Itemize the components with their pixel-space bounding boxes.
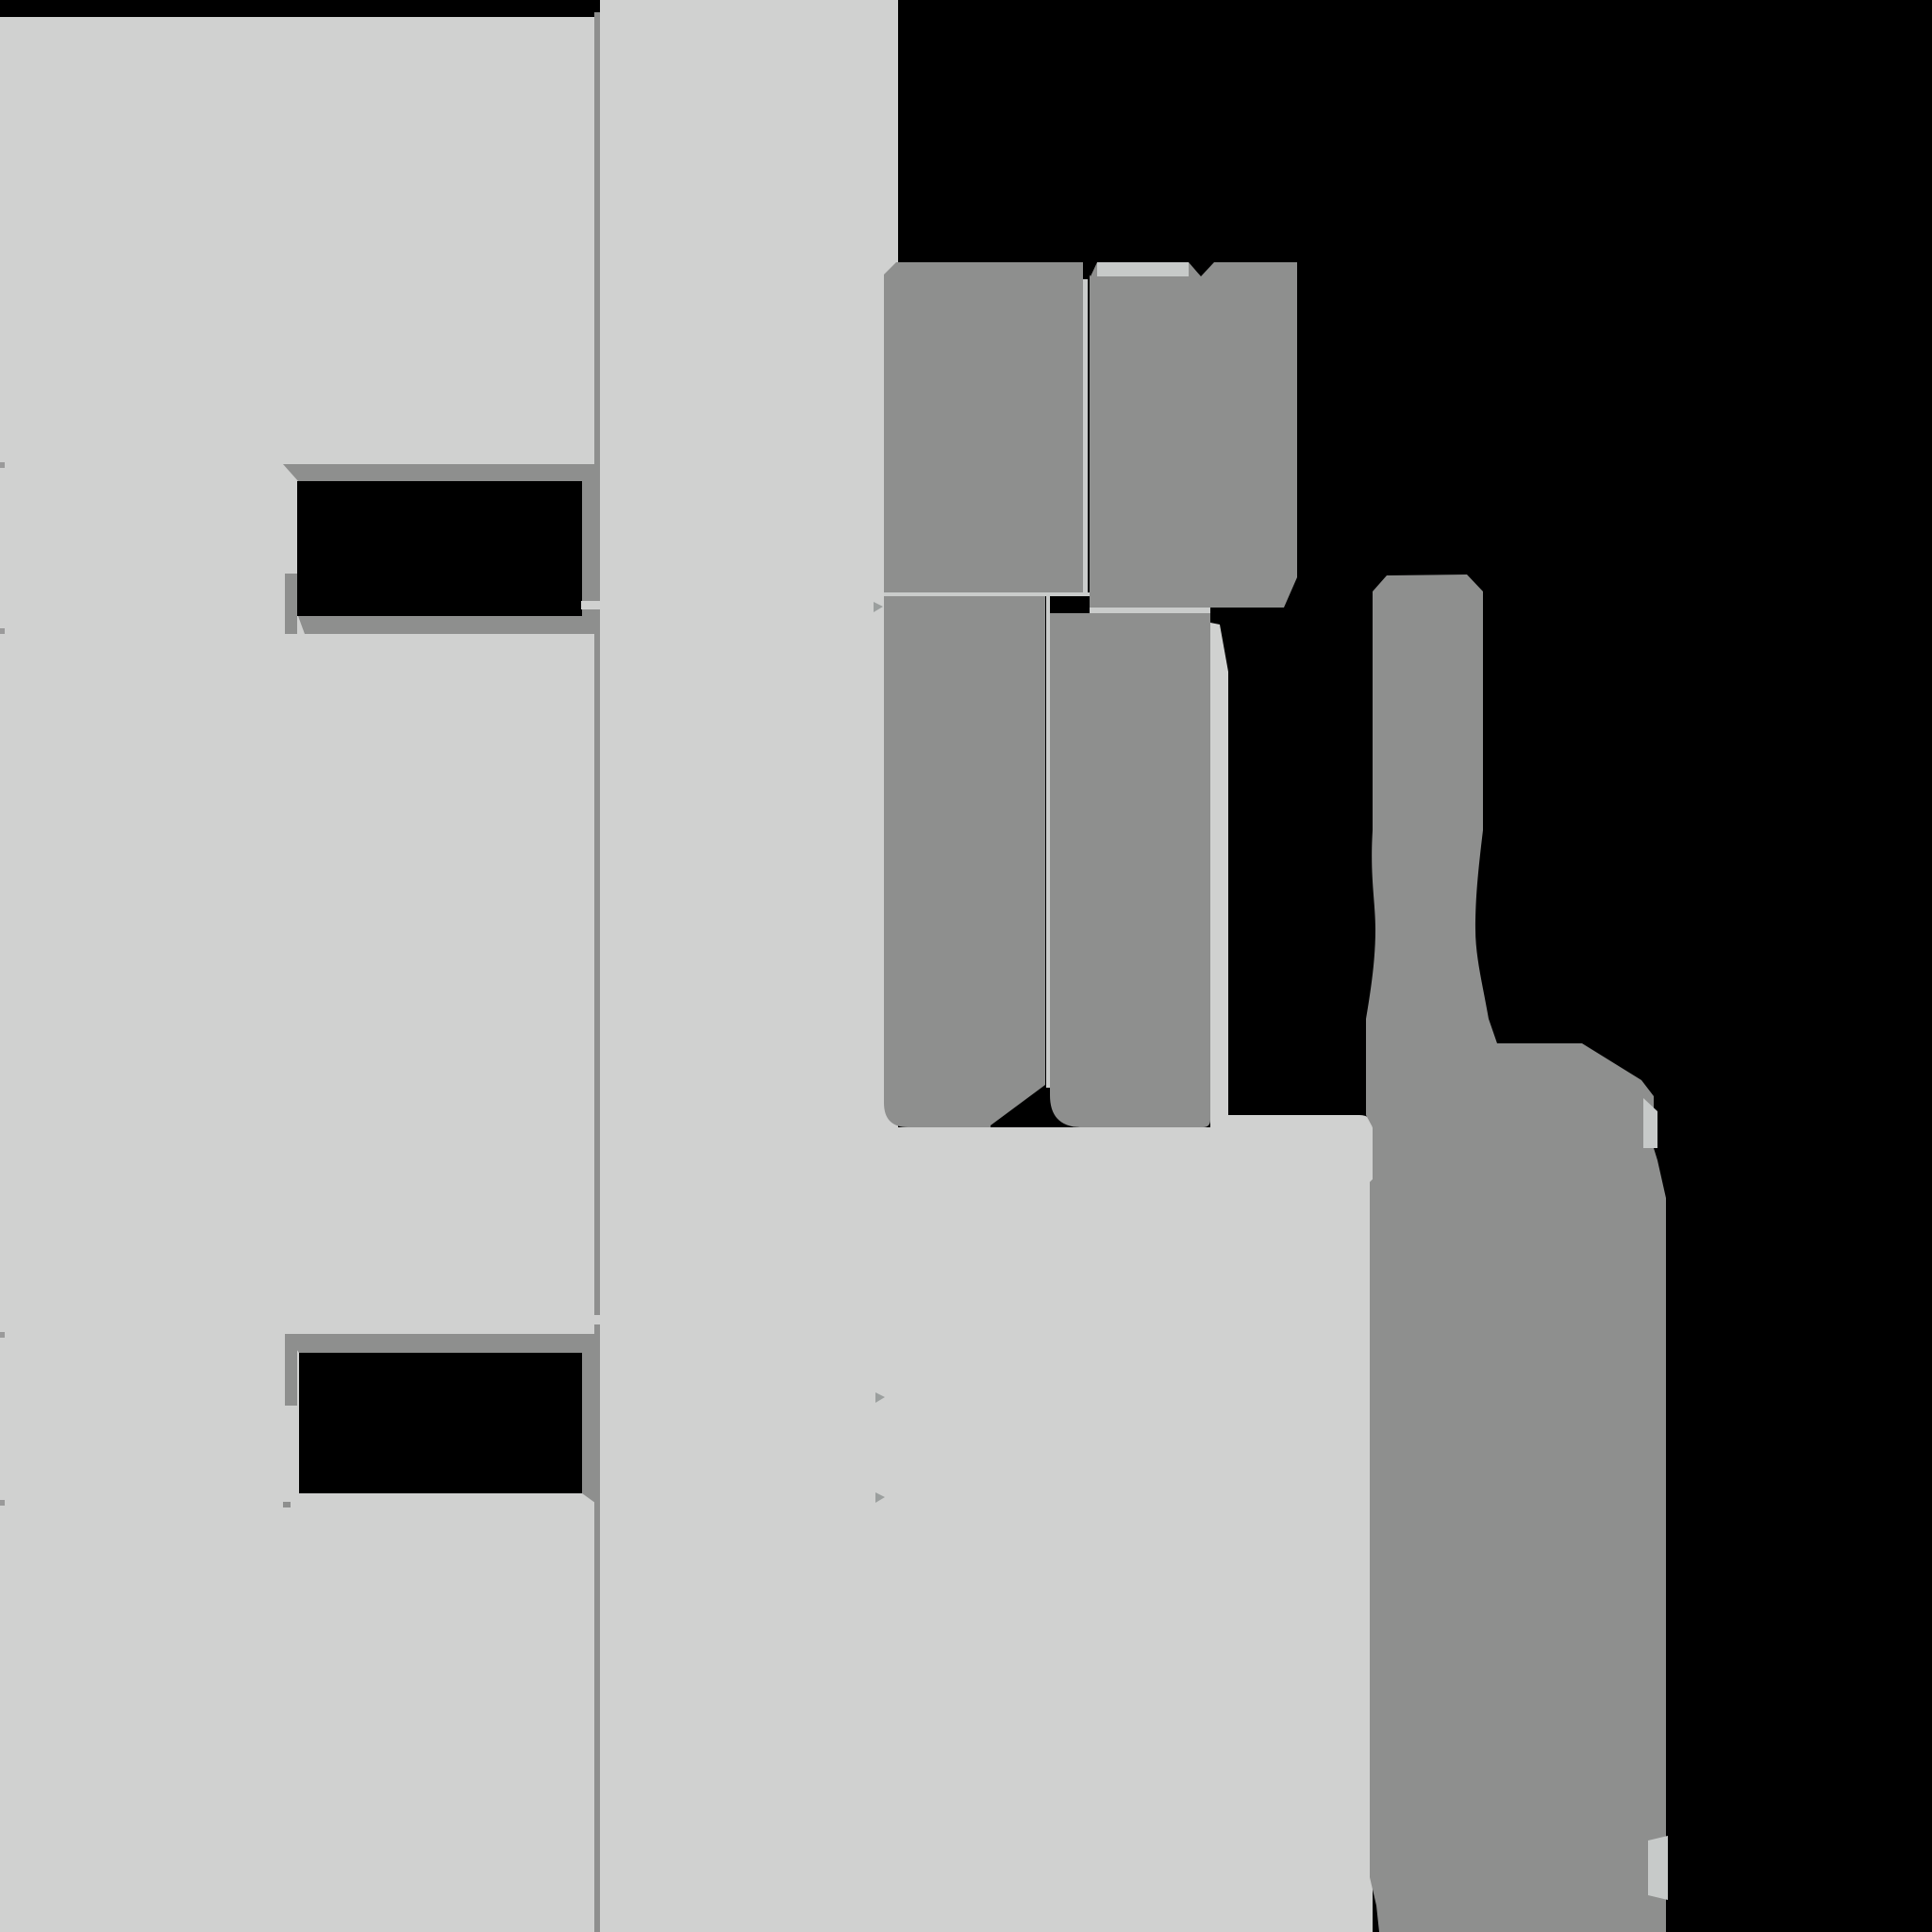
pillar-1-lower: [884, 596, 1045, 1127]
pillar-row-seam-1: [884, 592, 1090, 596]
scene-canvas: [0, 0, 1932, 1932]
pillar-seam-vertical-2: [1046, 596, 1050, 1088]
upper-opening-top-band: [283, 464, 596, 481]
grayscale-scene: [0, 0, 1932, 1932]
center-column: [600, 0, 898, 1932]
upper-opening-notch: [581, 601, 600, 609]
floor-corner-region: [1228, 1115, 1373, 1932]
edge-dash-4: [0, 1500, 5, 1506]
edge-dash-3: [0, 1332, 5, 1338]
lower-opening-right-band: [582, 1353, 599, 1506]
tower-edge-sliver-upper: [1643, 1098, 1657, 1148]
bottom-floor: [898, 1127, 1228, 1932]
lower-opening-top-band: [285, 1334, 599, 1353]
upper-opening-right-band: [582, 481, 596, 634]
floor-strip: [1210, 623, 1228, 1127]
edge-dash-1: [0, 462, 5, 468]
left-slab: [0, 17, 594, 1932]
pillar-row-seam-2: [1090, 608, 1210, 613]
lower-opening-black: [299, 1353, 582, 1493]
upper-opening-left-strip: [285, 574, 297, 634]
divider-line-gap-lower: [594, 1315, 600, 1324]
pillar-1-upper: [884, 262, 1083, 592]
edge-dash-2: [0, 628, 5, 634]
upper-opening-black: [297, 481, 582, 616]
tower-edge-sliver-lower: [1648, 1836, 1668, 1900]
lower-opening-left-mark: [283, 1502, 291, 1507]
lower-opening-left-strip: [285, 1334, 297, 1406]
upper-opening-bottom-band: [298, 616, 596, 634]
pillar-2-upper: [1090, 262, 1297, 608]
pillar-2-lower: [1050, 613, 1210, 1127]
pillar-seam-vertical-1: [1083, 279, 1088, 592]
divider-line: [594, 12, 600, 1932]
tower-with-base: [1366, 575, 1666, 1932]
pillar-top-highlight-band: [1097, 262, 1189, 276]
